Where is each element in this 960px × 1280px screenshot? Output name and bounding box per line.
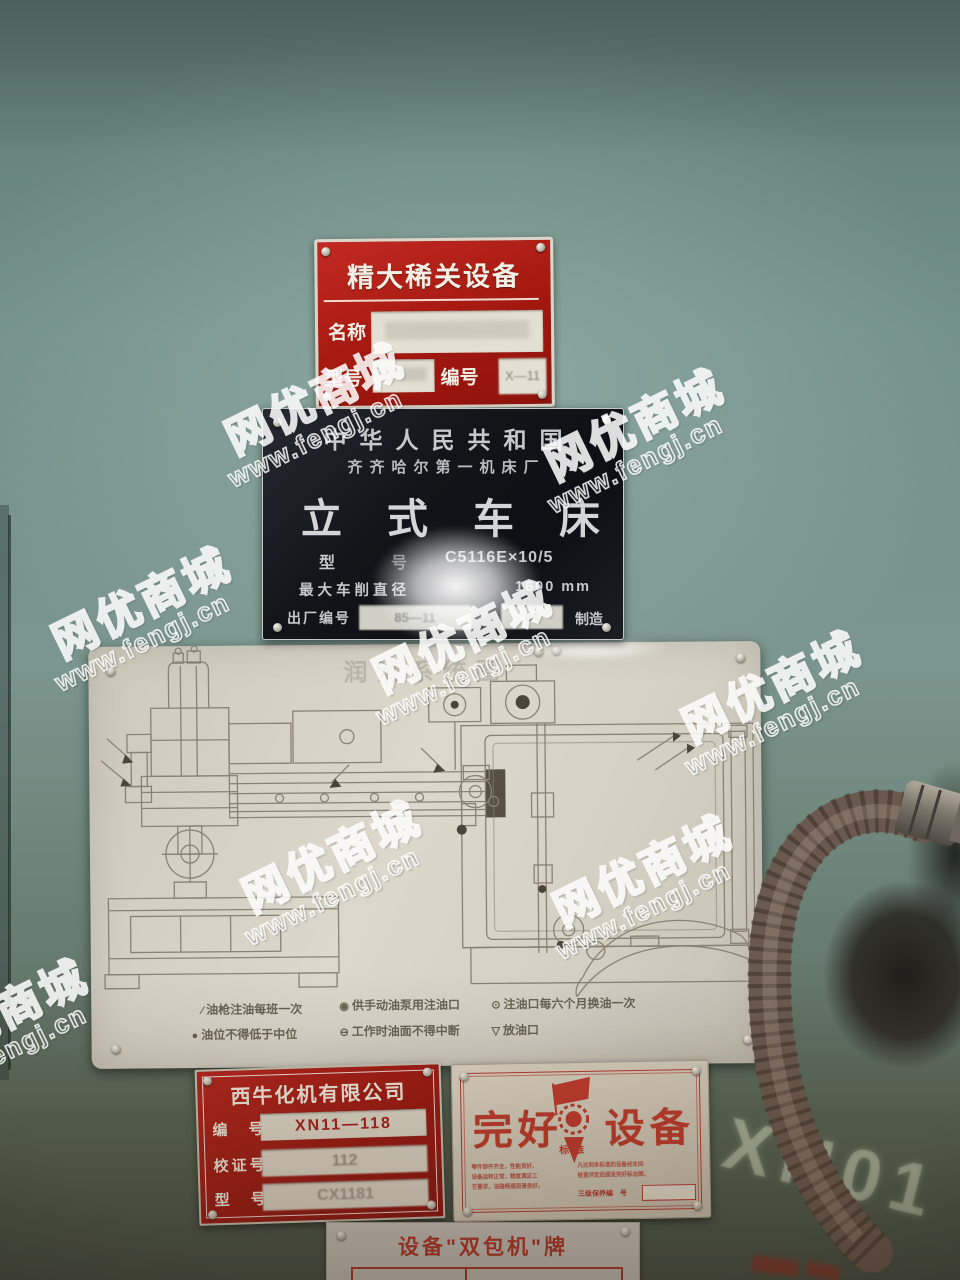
hose-layer (0, 0, 960, 1280)
factory-wall-photo: XN01 精大稀关设备 名称 型号 编号 X—11 中华人民共和国 齐齐哈尔第一… (0, 0, 960, 1280)
